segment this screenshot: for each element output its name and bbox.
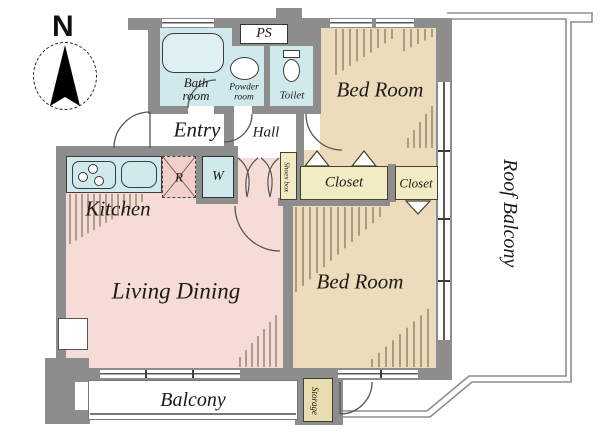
roof-balcony-label: Roof Balcony: [498, 128, 521, 298]
bath-room-label: Bath room: [170, 76, 222, 103]
bedroom-bottom-label: Bed Room: [317, 271, 404, 292]
wall-ld-bedroom: [283, 198, 293, 380]
wash-basin-icon: [230, 57, 259, 80]
window-right-mullion-2: [438, 218, 450, 220]
window-right-band: [438, 82, 450, 340]
wall-toilet-right: [313, 18, 321, 114]
floor-plan: N Bath room Powder room Toilet PS Entry …: [0, 0, 600, 436]
living-dining-label: Living Dining: [112, 279, 240, 302]
window-bottom-living-mullion-1: [145, 370, 147, 378]
window-top-bath: [162, 19, 214, 27]
wall-bath-left: [148, 18, 160, 114]
stove-burner-1: [88, 164, 98, 174]
window-top-bedroom-2: [376, 19, 414, 27]
toilet-tank-icon: [283, 50, 300, 58]
window-bottom-living-mullion-2: [192, 370, 194, 378]
window-right-mullion-1: [438, 150, 450, 152]
wall-bottomleft-c: [58, 410, 90, 424]
entry-label: Entry: [174, 119, 221, 140]
storage-label: Storage: [310, 382, 319, 420]
wall-bath-bottom-a: [148, 106, 188, 114]
bathtub-icon: [162, 33, 224, 73]
wall-hall-top: [252, 106, 318, 114]
balcony-label: Balcony: [160, 390, 226, 410]
wall-bath-bottom-b: [214, 106, 224, 114]
refrigerator-label: R: [175, 170, 183, 183]
closet-right-label: Closet: [399, 176, 432, 189]
powder-room-label: Powder room: [222, 83, 266, 102]
stove-burner-2: [78, 172, 88, 182]
balcony-rail-line: [90, 413, 296, 415]
toilet-bowl-icon: [283, 59, 300, 82]
hall-label: Hall: [253, 125, 280, 140]
kitchen-sink-icon: [121, 161, 157, 188]
window-bottom-bedroom: [338, 370, 418, 378]
washing-machine-label: W: [212, 170, 224, 184]
closet-left-label: Closet: [325, 175, 363, 190]
shoes-box-label: Shoes box: [283, 155, 291, 199]
compass-needle-icon: [28, 10, 104, 112]
window-right-mullion-3: [438, 280, 450, 282]
window-bottom-living: [100, 370, 240, 378]
kitchen-label: Kitchen: [85, 198, 150, 219]
wall-top-pillar: [276, 8, 302, 18]
stove-burner-3: [94, 176, 104, 186]
window-bottom-bedroom-mullion: [380, 370, 382, 378]
ps-label: PS: [256, 27, 272, 41]
bedroom-top-label: Bed Room: [337, 79, 424, 100]
wall-notch: [58, 318, 88, 350]
toilet-label: Toilet: [280, 90, 305, 101]
wall-below-closet1: [298, 200, 390, 206]
window-top-bedroom-1: [330, 19, 372, 27]
north-arrow: N: [28, 10, 104, 112]
